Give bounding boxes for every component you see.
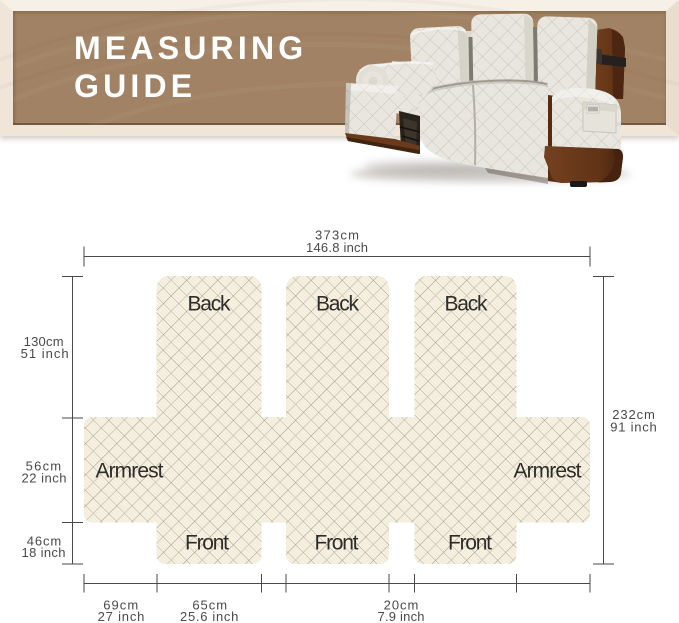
svg-text:7.9 inch: 7.9 inch <box>378 609 425 623</box>
svg-text:Back: Back <box>445 293 489 316</box>
svg-text:Armrest: Armrest <box>514 460 582 483</box>
svg-text:Front: Front <box>185 532 229 555</box>
svg-text:Armrest: Armrest <box>96 460 164 483</box>
svg-text:27 inch: 27 inch <box>98 609 145 623</box>
svg-text:Back: Back <box>188 293 232 316</box>
svg-text:91 inch: 91 inch <box>610 420 656 435</box>
svg-text:22 inch: 22 inch <box>22 471 67 486</box>
svg-text:Front: Front <box>315 532 359 555</box>
svg-text:51 inch: 51 inch <box>21 346 69 361</box>
svg-text:18 inch: 18 inch <box>22 545 66 560</box>
svg-text:Back: Back <box>316 293 360 316</box>
svg-text:Front: Front <box>448 532 492 555</box>
svg-text:146.8 inch: 146.8 inch <box>306 240 368 255</box>
svg-text:25.6 inch: 25.6 inch <box>180 609 238 623</box>
